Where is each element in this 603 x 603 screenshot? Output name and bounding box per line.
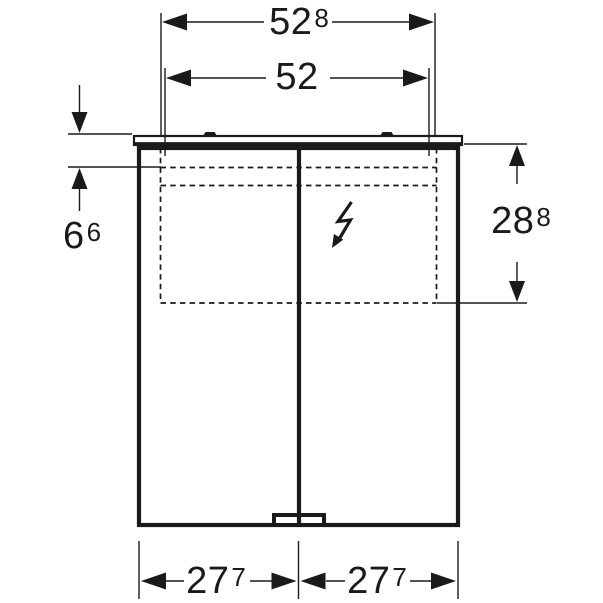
dim-value: 52: [269, 3, 312, 41]
dim-superscript: 7: [231, 564, 245, 590]
dim-superscript: 6: [87, 219, 101, 245]
arrow-left-icon: [301, 573, 326, 590]
arrow-right-icon: [409, 14, 434, 31]
arrow-left-icon: [162, 14, 187, 31]
dim-value: 28: [491, 202, 534, 240]
dim-value: 27: [186, 562, 229, 600]
arrow-down-icon: [72, 112, 88, 133]
arrow-up-icon: [509, 145, 525, 166]
dim-label-bottom-left: 277: [186, 562, 246, 600]
dim-value: 6: [63, 217, 85, 255]
dim-label-left: 66: [63, 217, 101, 255]
dim-label-top-outer: 528: [269, 3, 329, 41]
arrow-right-icon: [403, 70, 428, 87]
arrow-up-icon: [72, 168, 88, 189]
dim-superscript: 7: [392, 564, 406, 590]
dim-superscript: 8: [536, 204, 550, 230]
dim-label-bottom-right: 277: [347, 562, 407, 600]
dim-value: 52: [275, 58, 318, 96]
technical-drawing-canvas: 528 52 66 288 277 277: [0, 0, 603, 603]
arrow-right-icon: [272, 573, 297, 590]
dim-label-right: 288: [491, 202, 551, 240]
arrow-right-icon: [431, 573, 456, 590]
dim-superscript: 8: [314, 5, 328, 31]
dim-label-top-inner: 52: [275, 58, 320, 96]
arrow-down-icon: [509, 281, 525, 302]
cabinet-front-view: [134, 132, 462, 527]
arrow-left-icon: [141, 573, 166, 590]
arrow-left-icon: [166, 70, 191, 87]
dim-value: 27: [347, 562, 390, 600]
